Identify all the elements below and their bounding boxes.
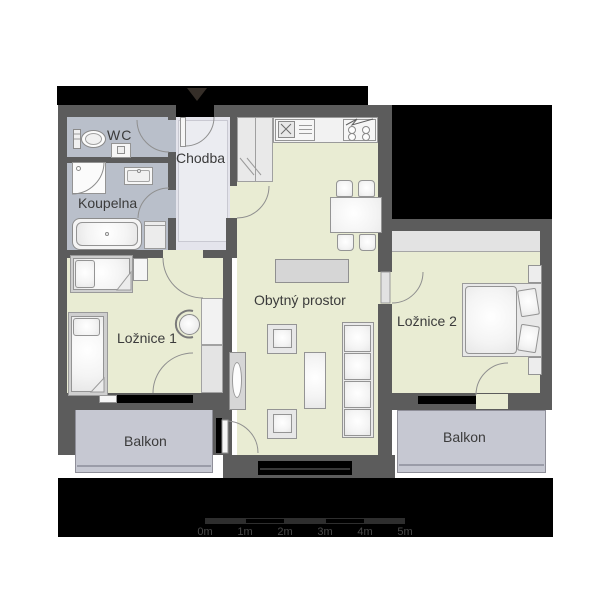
bedroom1-door-gap bbox=[163, 250, 203, 258]
scale-label-4m: 4m bbox=[348, 527, 382, 538]
wardrobe-bedroom1-top bbox=[201, 298, 223, 345]
double-bed-pillow-top bbox=[517, 288, 540, 318]
wall-hall-west-bottom bbox=[168, 218, 176, 250]
coffee-table-icon bbox=[304, 352, 326, 409]
bathtub-drain bbox=[105, 232, 109, 236]
entrance-opening bbox=[176, 105, 214, 117]
wall-bedroom2-top bbox=[378, 219, 552, 231]
room-label-living: Obytný prostor bbox=[254, 293, 346, 307]
bathroom-sink-drain bbox=[137, 169, 141, 173]
surround-bottom-band bbox=[58, 478, 553, 537]
room-label-bedroom2: Ložnice 2 bbox=[397, 314, 457, 328]
desk-chair-icon bbox=[179, 314, 200, 335]
scale-label-3m: 3m bbox=[308, 527, 342, 538]
dining-chair-3 bbox=[337, 234, 354, 251]
bedroom2-door-gap bbox=[378, 272, 392, 304]
hall-living-door-gap bbox=[230, 186, 237, 218]
sink-drainer-line2 bbox=[299, 129, 312, 130]
floorplan-canvas: WC Koupelna Chodba Obytný prostor Ložnic… bbox=[0, 0, 600, 600]
scale-bar-segment-5 bbox=[365, 518, 405, 524]
dining-chair-1 bbox=[336, 180, 353, 197]
dining-chair-4 bbox=[359, 234, 376, 251]
room-label-koupelna: Koupelna bbox=[78, 196, 137, 210]
bedroom1-window bbox=[117, 395, 193, 403]
armchair-1-cushion bbox=[273, 329, 292, 348]
double-bed-mattress bbox=[465, 286, 517, 354]
bedroom2-balcony-door-gap bbox=[476, 394, 508, 409]
living-west-window bbox=[216, 418, 222, 453]
nightstand-bed1a bbox=[133, 258, 148, 281]
toilet-tank bbox=[73, 129, 81, 149]
room-label-balcony-left: Balkon bbox=[124, 434, 167, 448]
scale-label-0m: 0m bbox=[188, 527, 222, 538]
armchair-2-cushion bbox=[273, 414, 292, 433]
bedroom1-balcony-door-leaf bbox=[99, 395, 117, 403]
wall-bedroom2-west-upper bbox=[378, 231, 392, 272]
shower-drain bbox=[76, 166, 81, 171]
bedroom2-window bbox=[418, 396, 476, 404]
wall-hall-east-top bbox=[230, 117, 237, 186]
scale-label-1m: 1m bbox=[228, 527, 262, 538]
room-label-bedroom1: Ložnice 1 bbox=[117, 331, 177, 345]
toilet-bowl-inner bbox=[85, 133, 102, 145]
wc-door-gap bbox=[168, 120, 176, 152]
scale-bar-segment-2 bbox=[245, 518, 285, 524]
room-label-balcony-right: Balkon bbox=[443, 430, 486, 444]
nightstand-bed2-top bbox=[528, 265, 542, 283]
stove-burner-4 bbox=[362, 133, 370, 141]
washing-machine-wc-door bbox=[117, 146, 125, 154]
scale-label-5m: 5m bbox=[388, 527, 422, 538]
bed1b-pillow bbox=[73, 318, 100, 336]
sofa-cushion-4 bbox=[344, 409, 371, 436]
balcony-left-edge bbox=[77, 465, 211, 467]
surround-top-band bbox=[57, 86, 368, 105]
bathroom-door-gap bbox=[168, 190, 176, 218]
scale-label-2m: 2m bbox=[268, 527, 302, 538]
entrance-door-leaf bbox=[180, 117, 186, 147]
kitchen-cabinet-divider bbox=[255, 118, 256, 181]
scale-bar-segment-3 bbox=[285, 518, 325, 524]
living-window bbox=[258, 461, 352, 475]
wall-hall-west-mid bbox=[168, 152, 176, 190]
wardrobe-bedroom1-bottom bbox=[201, 345, 223, 393]
wardrobe-bedroom2 bbox=[392, 231, 540, 252]
sofa-cushion-1 bbox=[344, 325, 371, 352]
wall-bedroom2-west-lower bbox=[378, 304, 392, 478]
stove-burner-3 bbox=[348, 133, 356, 141]
scale-bar-segment-1 bbox=[205, 518, 245, 524]
tv-screen bbox=[232, 362, 242, 398]
wall-hall-east-bottom bbox=[226, 218, 237, 258]
washing-machine-bath-panel bbox=[145, 225, 165, 226]
sink-drainer-line3 bbox=[299, 133, 312, 134]
kitchen-sink-basin bbox=[278, 121, 295, 138]
sofa-cushion-2 bbox=[344, 353, 371, 380]
nightstand-bed2-bottom bbox=[528, 357, 542, 375]
sink-drainer-line1 bbox=[299, 125, 312, 126]
dining-table-icon bbox=[330, 197, 382, 233]
sideboard-icon bbox=[275, 259, 349, 283]
wall-top bbox=[58, 105, 392, 117]
room-label-chodba: Chodba bbox=[176, 151, 225, 165]
dining-chair-2 bbox=[358, 180, 375, 197]
surround-top-right-block bbox=[392, 105, 552, 219]
bed1a-pillow bbox=[75, 260, 95, 288]
scale-bar-segment-4 bbox=[325, 518, 365, 524]
balcony-right-edge bbox=[399, 464, 544, 466]
entrance-marker-icon bbox=[187, 88, 207, 101]
sofa-cushion-3 bbox=[344, 381, 371, 408]
room-label-wc: WC bbox=[107, 128, 132, 142]
wall-balcony-left-stub-w bbox=[58, 400, 75, 455]
